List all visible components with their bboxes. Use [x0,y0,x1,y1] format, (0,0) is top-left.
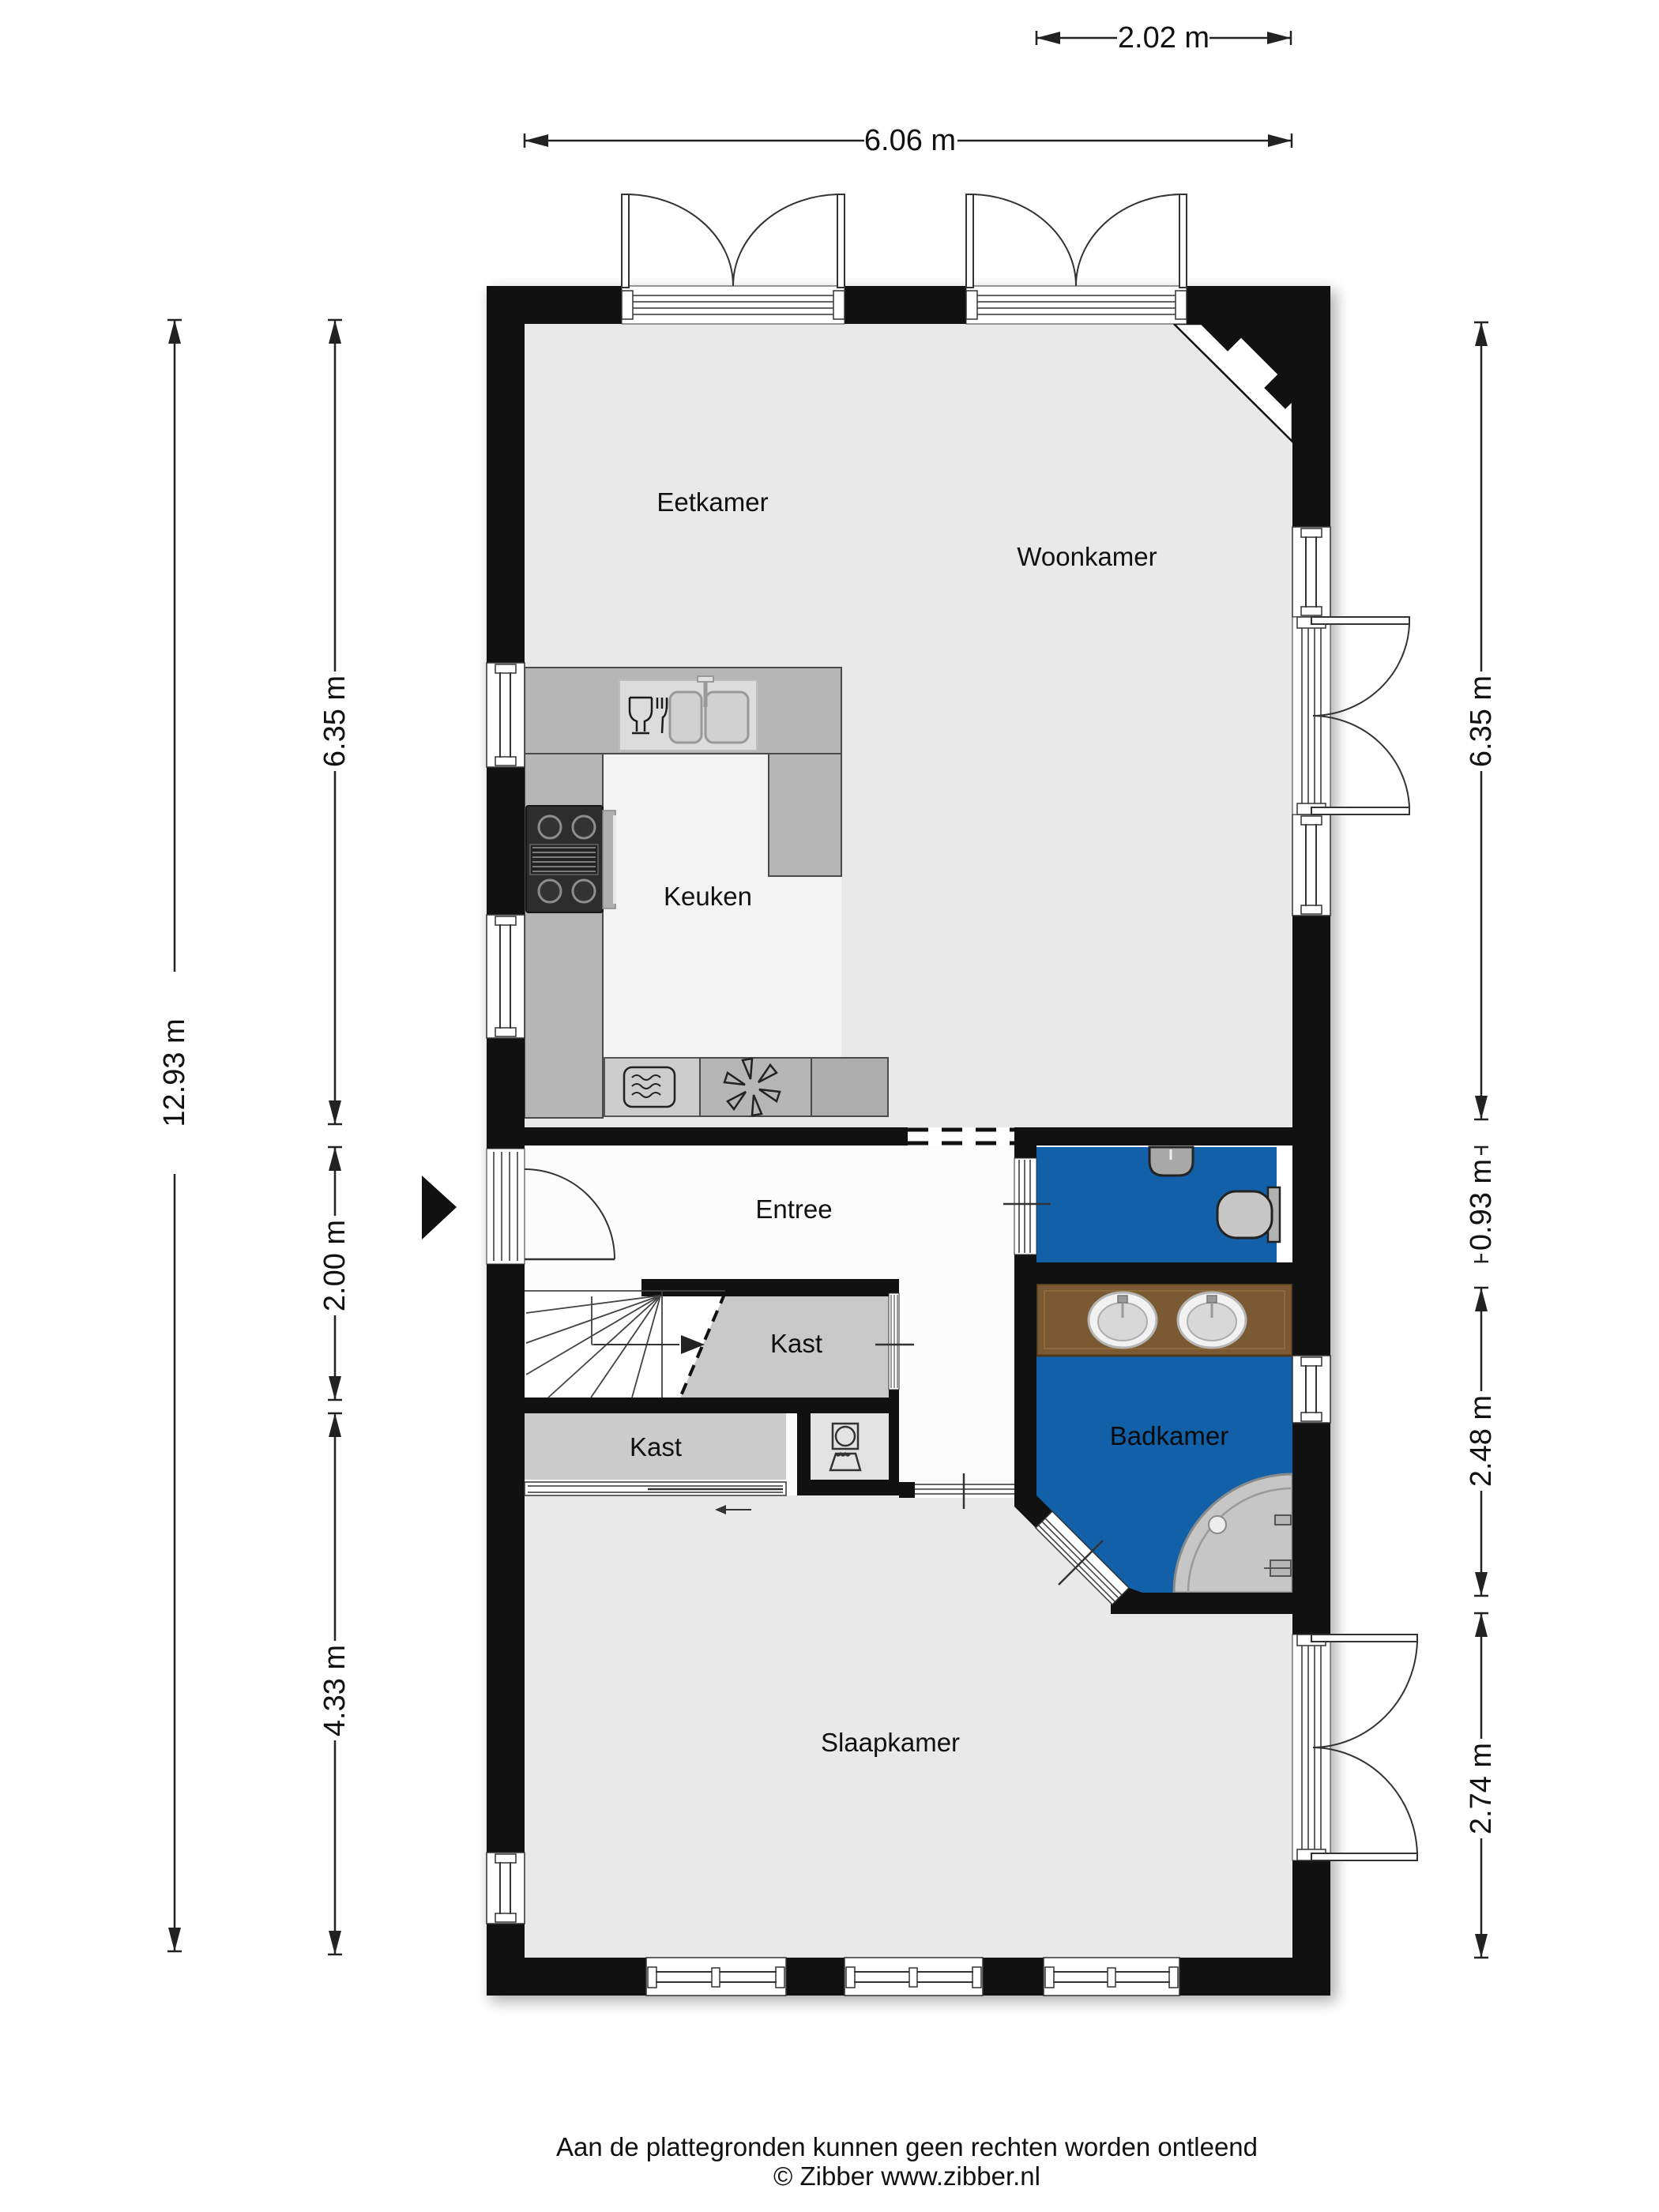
svg-text:6.35 m: 6.35 m [318,675,352,767]
svg-text:6.06 m: 6.06 m [864,124,956,157]
svg-text:12.93 m: 12.93 m [158,1018,191,1127]
svg-text:4.33 m: 4.33 m [318,1645,352,1736]
svg-text:2.02 m: 2.02 m [1118,21,1209,55]
svg-text:Kast: Kast [770,1329,822,1358]
svg-text:Kast: Kast [630,1432,682,1461]
svg-text:Entree: Entree [755,1194,832,1224]
svg-text:Eetkamer: Eetkamer [656,487,768,517]
svg-text:0.93 m: 0.93 m [1465,1159,1498,1251]
svg-text:Keuken: Keuken [664,882,752,911]
svg-text:© Zibber www.zibber.nl: © Zibber www.zibber.nl [773,2161,1040,2191]
svg-text:Badkamer: Badkamer [1110,1421,1228,1450]
svg-text:2.74 m: 2.74 m [1465,1743,1498,1834]
svg-text:6.35 m: 6.35 m [1465,675,1498,767]
svg-text:Aan de plattegronden kunnen ge: Aan de plattegronden kunnen geen rechten… [556,2132,1258,2161]
svg-text:2.48 m: 2.48 m [1465,1395,1498,1487]
svg-text:Woonkamer: Woonkamer [1017,542,1157,571]
svg-text:2.00 m: 2.00 m [318,1220,352,1311]
svg-text:Slaapkamer: Slaapkamer [821,1728,960,1757]
